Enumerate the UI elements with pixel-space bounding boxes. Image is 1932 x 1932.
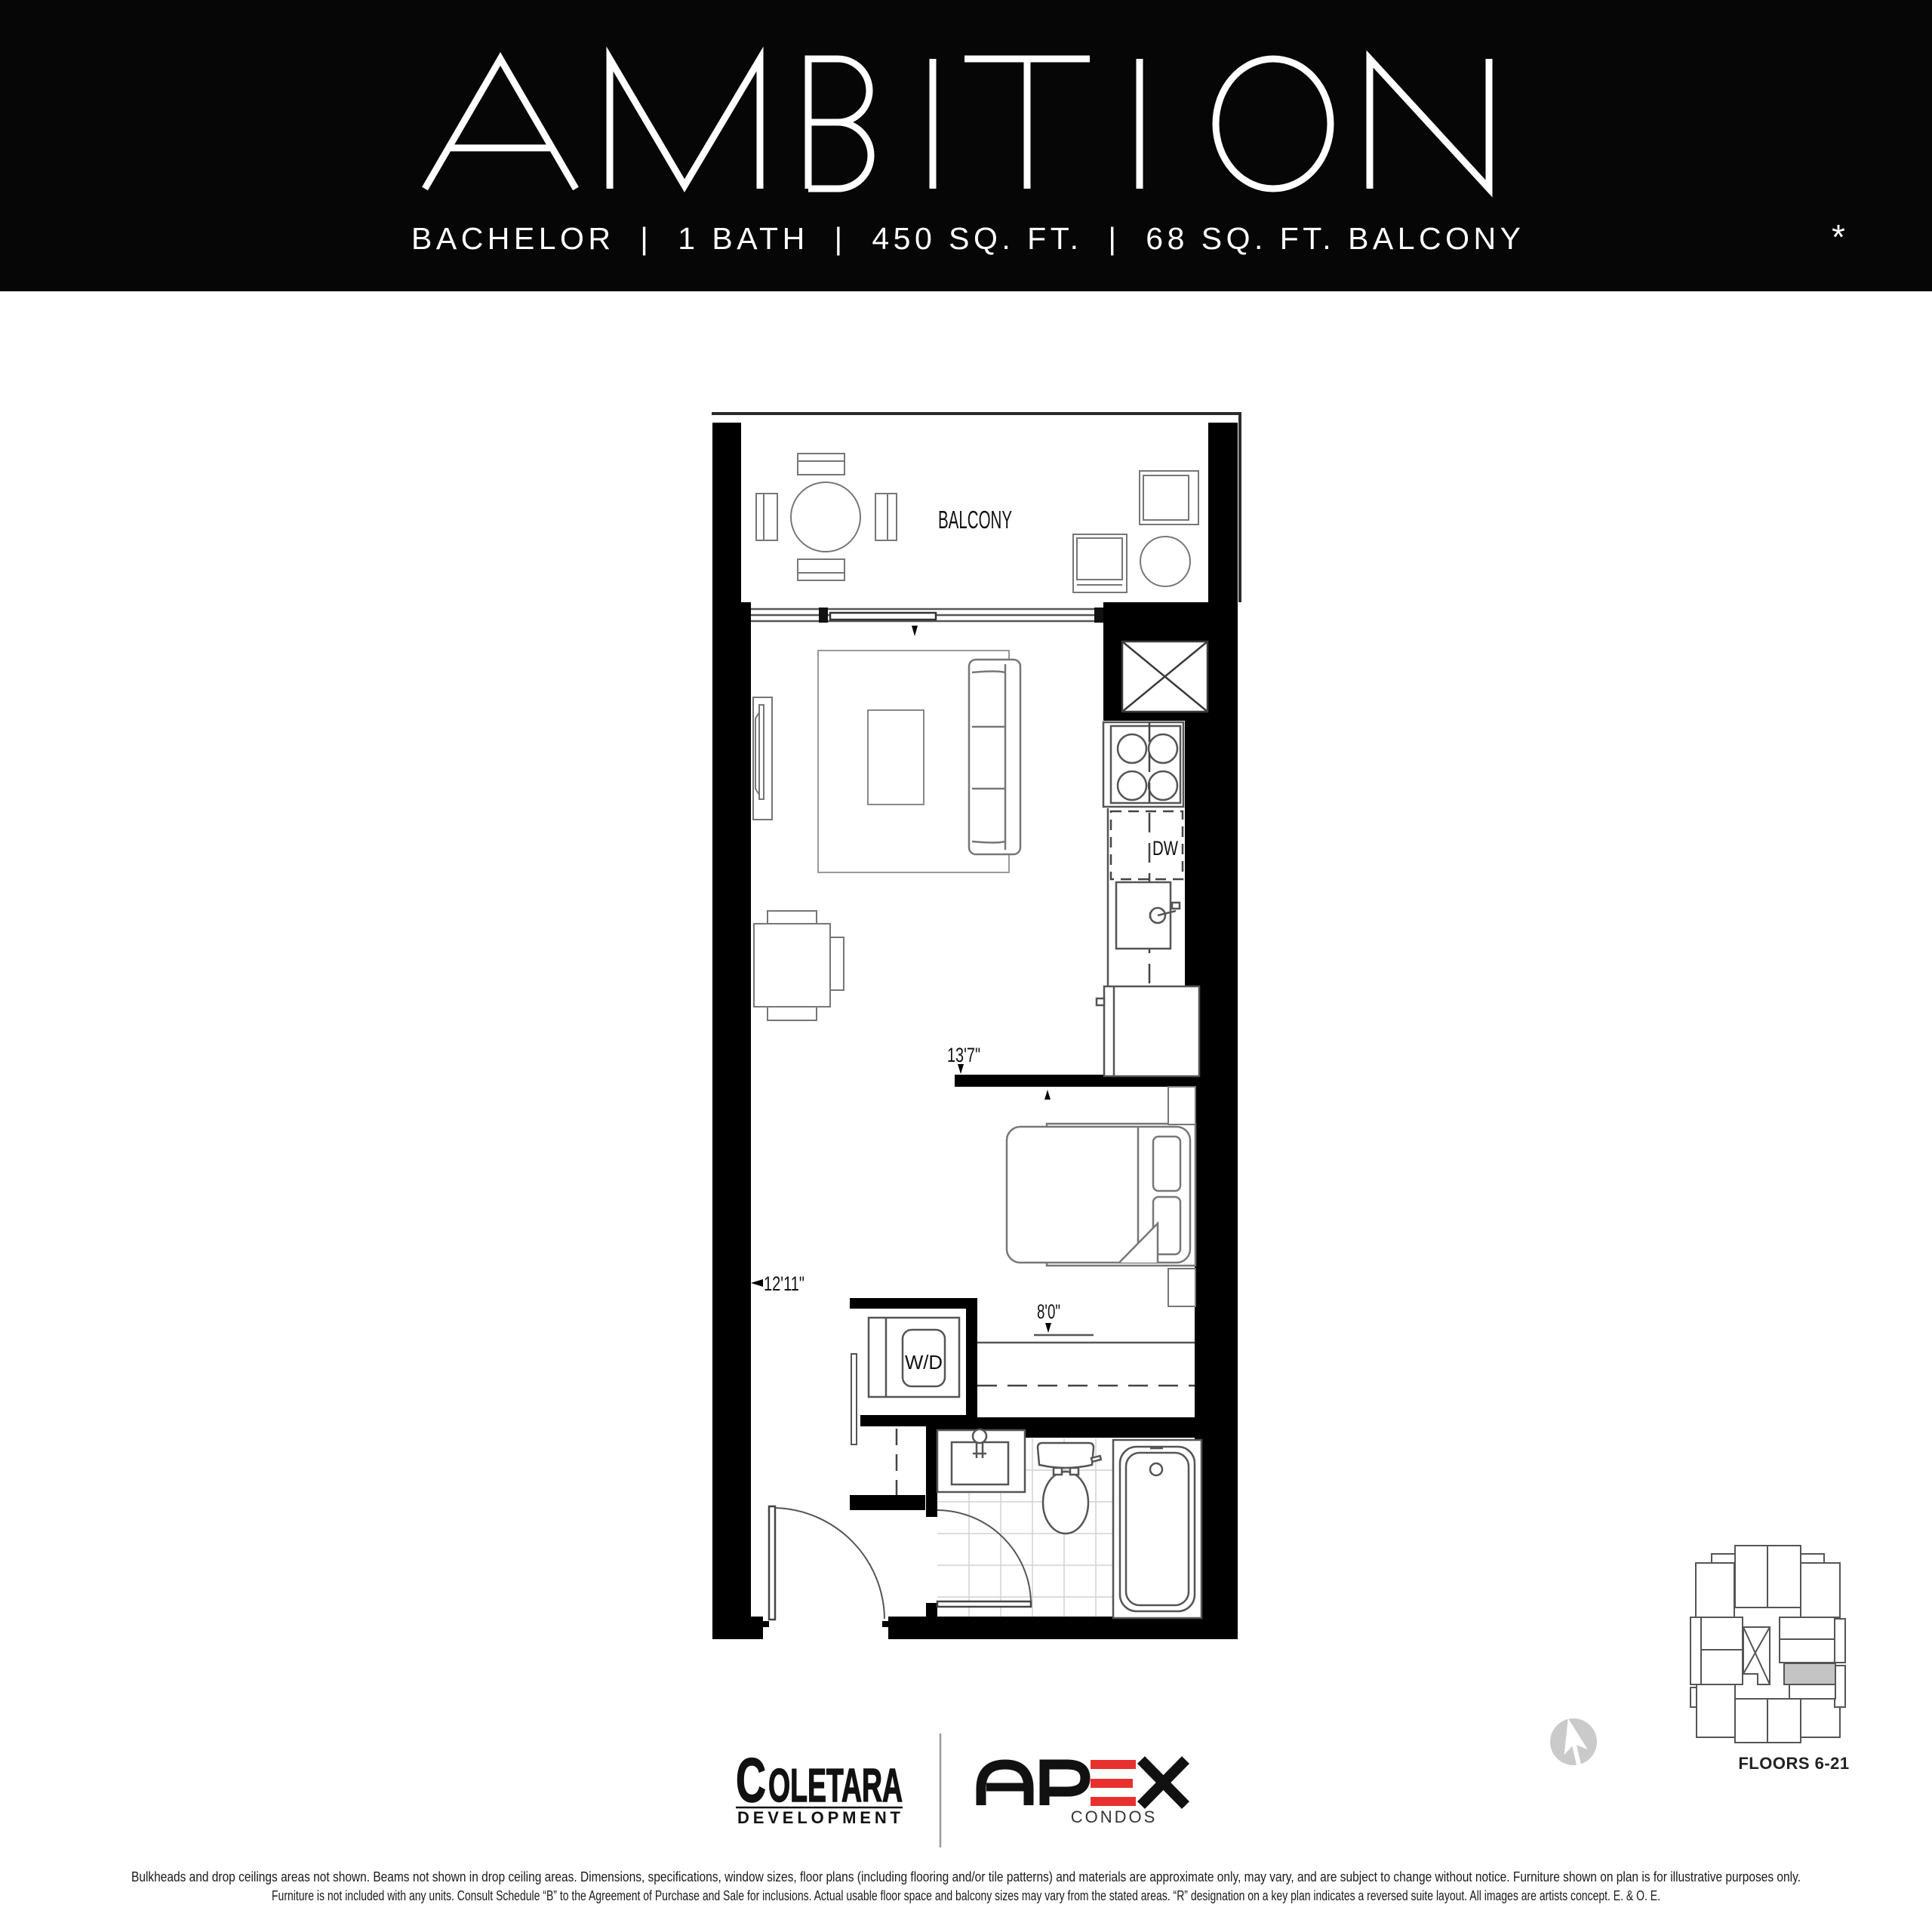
svg-text:12'11": 12'11"	[764, 1272, 804, 1295]
svg-text:W/D: W/D	[905, 1351, 943, 1374]
svg-text:BALCONY: BALCONY	[938, 506, 1012, 534]
svg-text:*: *	[1832, 217, 1845, 257]
svg-text:13'7": 13'7"	[947, 1044, 980, 1066]
svg-text:8'0": 8'0"	[1037, 1300, 1060, 1323]
svg-text:C: C	[736, 1745, 766, 1815]
svg-text:Bulkheads and drop ceilings ar: Bulkheads and drop ceilings areas not sh…	[131, 1869, 1801, 1884]
svg-text:DEVELOPMENT: DEVELOPMENT	[737, 1808, 901, 1827]
svg-text:CONDOS: CONDOS	[1071, 1807, 1158, 1826]
svg-text:FLOORS 6-21: FLOORS 6-21	[1738, 1754, 1849, 1773]
svg-text:DW: DW	[1152, 837, 1178, 860]
svg-text:Furniture is not included with: Furniture is not included with any units…	[272, 1887, 1660, 1903]
svg-text:OLETARA: OLETARA	[768, 1760, 903, 1812]
svg-text:BACHELOR | 1 BATH | 450 SQ: BACHELOR | 1 BATH | 450 SQ. FT. | 68 SQ.…	[411, 221, 1521, 256]
